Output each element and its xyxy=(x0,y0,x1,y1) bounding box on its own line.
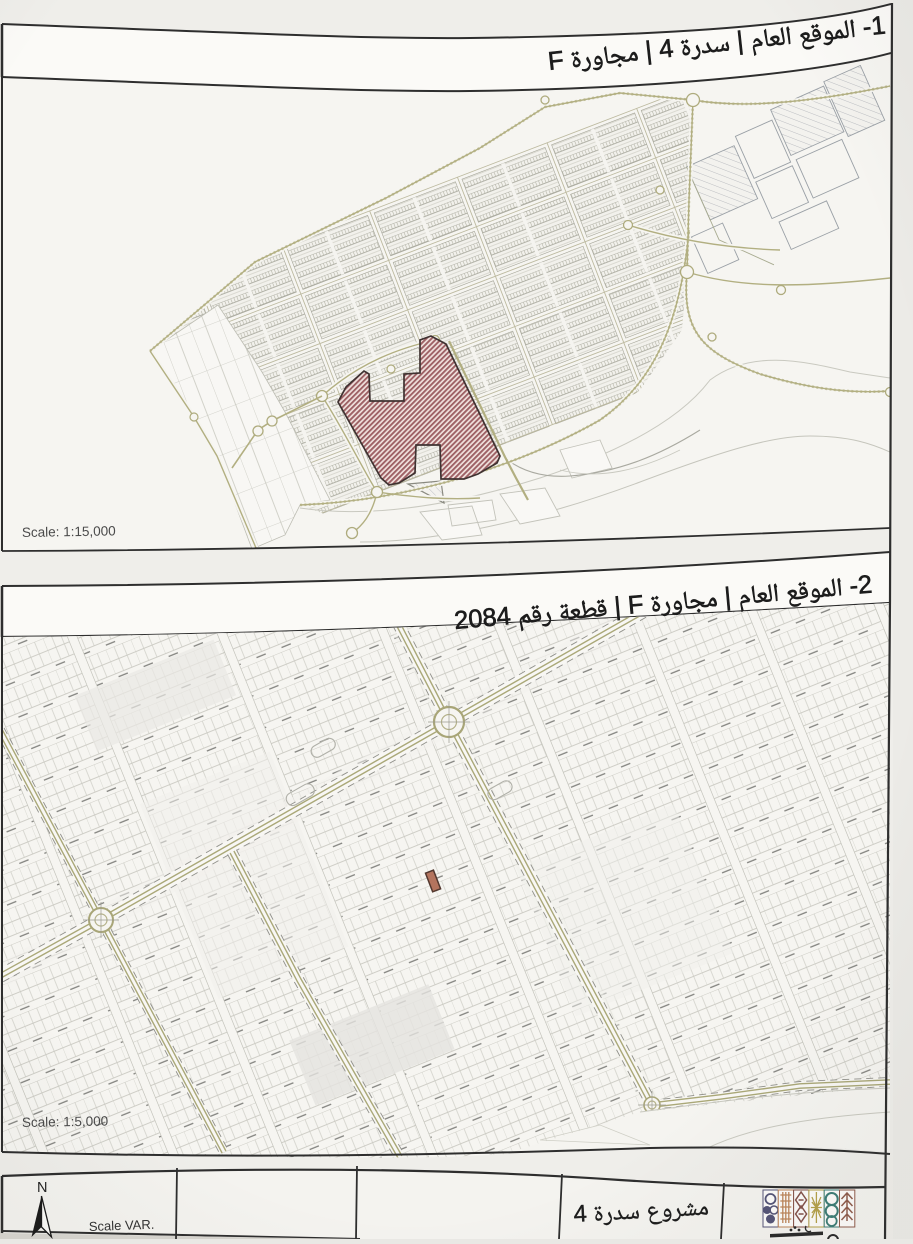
svg-text:Scale: 1:5,000: Scale: 1:5,000 xyxy=(22,1113,109,1130)
svg-text:Scale VAR.: Scale VAR. xyxy=(89,1217,155,1234)
svg-text:Scale: 1:15,000: Scale: 1:15,000 xyxy=(22,523,116,540)
svg-text:N: N xyxy=(37,1180,47,1196)
